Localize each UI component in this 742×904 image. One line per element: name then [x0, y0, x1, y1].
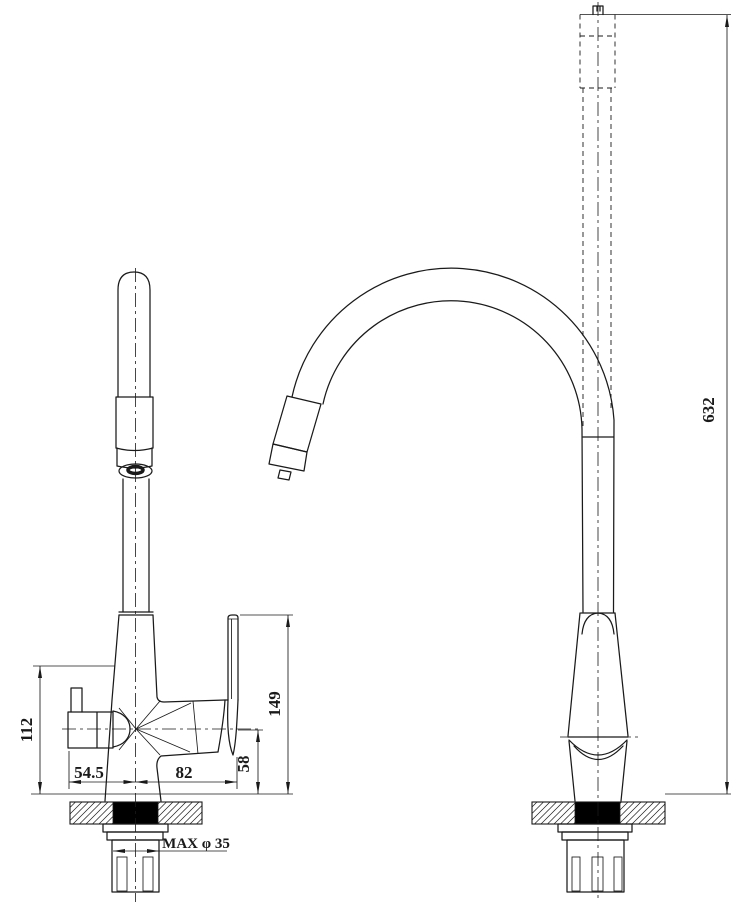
dim-149-label: 149	[265, 691, 284, 717]
dim-max35-label: MAX φ 35	[162, 836, 230, 852]
front-body	[105, 615, 228, 801]
lever-bar-inner-lines	[228, 619, 238, 699]
arrow-112-up	[38, 666, 42, 678]
front-spout-column	[116, 272, 153, 615]
gooseneck-outer-arc	[292, 268, 614, 612]
arrow-112-down	[38, 782, 42, 794]
side-shank-slot-left	[572, 857, 580, 891]
gooseneck-inner-arc	[323, 301, 583, 612]
filter-handle-stem	[71, 688, 82, 712]
shank-slot-right	[143, 857, 153, 891]
front-lever-handle	[228, 615, 238, 755]
spout-top-tube	[118, 272, 150, 397]
spout-collar	[116, 397, 153, 451]
lever-bar	[228, 615, 238, 700]
arrow-max35-left	[113, 849, 125, 853]
spout-head-nozzle	[278, 470, 291, 480]
arrow-632-down	[725, 782, 729, 794]
dimension-arrows	[38, 15, 729, 853]
dim-82-label: 82	[176, 763, 193, 782]
side-shank-slot-center	[592, 857, 603, 891]
spout-head-band	[269, 444, 307, 471]
drawing-sheet: 112 54.5 82 58 149 632 MAX φ 35	[0, 0, 742, 904]
body-right-shoulder	[153, 615, 228, 702]
side-joint-arc-2	[574, 746, 623, 760]
spout-lower-tube	[123, 479, 149, 612]
shank-slot-left	[117, 857, 127, 891]
arrow-149-down	[286, 782, 290, 794]
arrow-632-up	[725, 15, 729, 27]
side-gooseneck	[292, 268, 614, 612]
front-filter-handle	[68, 688, 113, 748]
side-flange-2	[562, 832, 628, 840]
side-flange-1	[558, 824, 632, 832]
dim-58-label: 58	[234, 756, 253, 773]
hose-phantom-head	[580, 15, 615, 89]
arrow-58-down	[256, 782, 260, 794]
base-flange-2	[107, 832, 163, 840]
neck-joint	[119, 612, 153, 615]
dim-632-label: 632	[699, 397, 718, 423]
filter-handle-block	[68, 712, 113, 748]
arrow-82-right	[225, 780, 237, 784]
faucet-technical-drawing: 112 54.5 82 58 149 632 MAX φ 35	[0, 0, 742, 904]
front-countertop	[70, 802, 202, 824]
dim-545-label: 54.5	[74, 763, 104, 782]
lever-tail	[228, 700, 238, 755]
side-spout-head	[269, 396, 321, 480]
body-facet-line	[193, 701, 198, 754]
arrow-82-left	[136, 780, 148, 784]
side-countertop	[532, 802, 665, 824]
front-view	[62, 268, 262, 902]
hose-phantom-tube	[583, 88, 611, 427]
side-threaded-shank	[567, 840, 624, 892]
side-shank-slot-right	[614, 857, 622, 891]
body-right-edge	[218, 700, 225, 752]
dimension-annotations: 112 54.5 82 58 149 632 MAX φ 35	[17, 15, 731, 854]
side-mounting-seal	[575, 802, 620, 824]
dim-112-label: 112	[17, 718, 36, 743]
side-view	[269, 2, 665, 902]
arrow-149-up	[286, 615, 290, 627]
body-left-edge	[105, 615, 119, 801]
arrow-545-right	[124, 780, 136, 784]
spout-head-body	[273, 396, 321, 452]
arrow-58-up	[256, 730, 260, 742]
side-shank	[558, 824, 632, 892]
side-phantom-hose	[580, 6, 615, 427]
arrow-max35-right	[147, 849, 159, 853]
